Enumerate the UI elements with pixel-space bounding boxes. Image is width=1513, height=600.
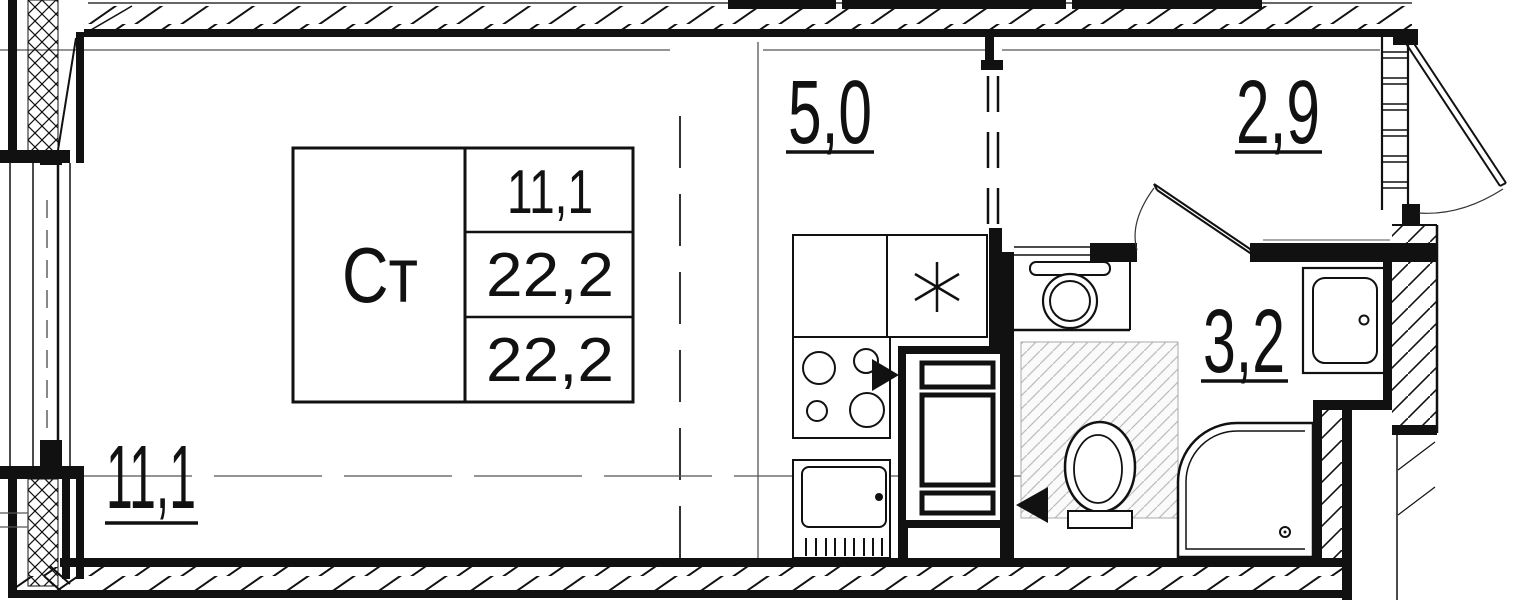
vent-duct (922, 395, 993, 485)
right-exterior-wall (1392, 225, 1437, 600)
bottom-wall-inner-face (60, 558, 1352, 567)
bathroom-top-wall-left (1090, 243, 1137, 262)
top-wall-hatch (84, 6, 1412, 29)
window-jamb-bottom (40, 440, 62, 466)
shower-drain-dot (1284, 531, 1287, 534)
bathroom-right-wall-upper (1383, 258, 1392, 405)
vent-duct (922, 493, 993, 513)
washbasin-drain (1360, 316, 1369, 325)
partition-stub-top-foot (981, 60, 1003, 70)
bathroom-wall-step (1313, 400, 1392, 410)
right-wall-hatched (1392, 225, 1437, 433)
bottom-wall-outer-face (8, 590, 1352, 598)
top-wall-inner-face (84, 29, 1412, 37)
wall-cut-hatch-mark (1398, 442, 1435, 470)
left-exterior-wall-window (0, 0, 84, 593)
bathroom-area-label: 3,2 (1203, 292, 1285, 392)
kitchen-counter (793, 235, 987, 337)
bathroom-door (1135, 184, 1253, 255)
window-sill-bottom (0, 466, 84, 479)
bottom-exterior-wall (8, 558, 1352, 598)
vent-duct (922, 363, 993, 387)
left-wall-insulation-top (28, 0, 58, 160)
left-wall-inner-post-top (76, 32, 84, 163)
left-wall-outer-bar-top (8, 0, 17, 160)
entrance-door (1405, 39, 1506, 213)
refrigerator-door (802, 467, 886, 527)
hall-area-label: 2,9 (1236, 63, 1320, 163)
unit-area-row: 11,1 (507, 158, 593, 227)
right-wall-lower-outer (1342, 407, 1352, 600)
window-frame (10, 163, 70, 466)
living-room-area-label: 11,1 (106, 428, 196, 528)
left-wall-corner-diagonal-top (58, 38, 76, 150)
bathroom-door-leaf (1154, 184, 1250, 249)
top-exterior-wall (84, 0, 1412, 37)
kitchen-area-label: 5,0 (788, 63, 872, 163)
bathroom-sink-bowl (1043, 274, 1097, 328)
corner-shower-tray (1178, 423, 1313, 557)
unit-area-row: 22,2 (486, 326, 614, 395)
ventilation-shaft (898, 350, 1010, 558)
bathroom-left-wall (1000, 252, 1014, 558)
bathroom-right-wall-lower (1313, 410, 1322, 558)
refrigerator-handle (875, 493, 883, 501)
entrance-side-panel-ladder-hatch (1382, 36, 1408, 210)
bottom-wall-hatch (8, 567, 1352, 590)
entrance-door-swing-arc (1419, 189, 1503, 213)
entrance-door-leaf (1405, 42, 1500, 186)
bathroom-door-leaf (1157, 190, 1253, 255)
entrance-door-assembly (1382, 29, 1506, 226)
entrance-door-leaf (1411, 39, 1506, 183)
bathroom (1000, 184, 1438, 600)
floor-plan-svg: Ст 11,1 22,2 22,2 11,1 5,0 2,9 3,2 (0, 0, 1513, 600)
right-wall-end-cap (1392, 425, 1437, 435)
unit-type-label: Ст (342, 231, 418, 319)
stove-burner (803, 352, 835, 384)
floor-plan: Ст 11,1 22,2 22,2 11,1 5,0 2,9 3,2 (0, 0, 1513, 600)
stove-burner (807, 401, 827, 421)
toilet-base (1068, 511, 1132, 528)
window-jamb-top (40, 150, 62, 165)
wall-cut-hatch-mark (1398, 487, 1435, 515)
stove-burner (850, 393, 884, 427)
bathroom-door-swing-arc (1135, 188, 1154, 250)
unit-area-row: 22,2 (486, 241, 614, 310)
vent-shaft-leg (898, 524, 908, 558)
entrance-door-stub (1402, 204, 1420, 226)
right-wall-lower-hatch (1322, 410, 1342, 558)
unit-info-table: Ст 11,1 22,2 22,2 (293, 148, 633, 402)
